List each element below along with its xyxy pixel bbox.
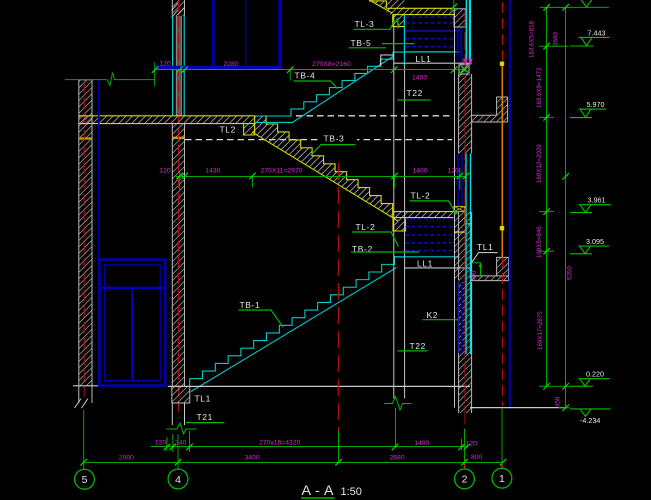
svg-text:169X12=2029: 169X12=2029 (536, 144, 543, 183)
svg-text:5350: 5350 (567, 266, 574, 280)
svg-text:270x16=4320: 270x16=4320 (259, 440, 301, 447)
svg-text:1: 1 (499, 473, 505, 485)
svg-text:LL1: LL1 (417, 259, 433, 269)
svg-text:TL-2: TL-2 (411, 190, 431, 200)
svg-text:400: 400 (471, 270, 478, 281)
svg-text:LL1: LL1 (416, 54, 432, 64)
svg-text:3.961: 3.961 (588, 196, 606, 205)
svg-text:120: 120 (466, 441, 478, 448)
svg-text:120: 120 (160, 61, 172, 68)
svg-text:169X17=2875: 169X17=2875 (537, 311, 544, 350)
svg-text:TB-3: TB-3 (324, 134, 345, 144)
svg-text:TB-5: TB-5 (351, 38, 372, 48)
svg-text:1400: 1400 (414, 440, 429, 447)
svg-text:1400: 1400 (413, 167, 428, 174)
svg-text:A - A: A - A (302, 483, 335, 499)
svg-text:3400: 3400 (245, 454, 260, 461)
svg-text:1400: 1400 (412, 75, 427, 82)
svg-text:5: 5 (82, 474, 88, 486)
svg-text:800: 800 (471, 454, 483, 461)
svg-text:169X5=846: 169X5=846 (536, 226, 543, 258)
svg-text:340: 340 (175, 440, 187, 447)
svg-text:TL1: TL1 (477, 242, 493, 252)
svg-text:163.6X5=818: 163.6X5=818 (529, 20, 536, 58)
svg-text:TL1: TL1 (195, 394, 211, 404)
svg-text:3.095: 3.095 (586, 237, 604, 246)
svg-text:TL2: TL2 (220, 125, 236, 135)
svg-text:1:50: 1:50 (341, 486, 362, 498)
svg-text:120: 120 (448, 167, 460, 174)
svg-text:5.970: 5.970 (587, 100, 605, 109)
svg-text:TL-3: TL-3 (355, 19, 375, 29)
svg-text:TB-2: TB-2 (352, 244, 373, 254)
svg-text:0.220: 0.220 (586, 370, 604, 379)
svg-text:TB-4: TB-4 (295, 70, 316, 80)
svg-text:7.443: 7.443 (588, 28, 606, 37)
svg-text:2: 2 (462, 474, 468, 486)
svg-text:T21: T21 (197, 412, 213, 422)
svg-text:270X11=2970: 270X11=2970 (261, 167, 303, 174)
svg-text:K2: K2 (427, 310, 439, 320)
svg-text:3600: 3600 (553, 32, 560, 46)
svg-text:163.6X9=1473: 163.6X9=1473 (536, 67, 543, 108)
svg-text:4: 4 (175, 474, 181, 486)
svg-text:2000: 2000 (119, 454, 134, 461)
svg-text:120: 120 (155, 440, 167, 447)
svg-text:T22: T22 (410, 341, 426, 351)
svg-text:270X8=2160: 270X8=2160 (312, 61, 351, 68)
svg-text:-4.234: -4.234 (580, 416, 600, 425)
svg-text:1430: 1430 (205, 167, 220, 174)
svg-text:TB-1: TB-1 (240, 300, 261, 310)
svg-text:T22: T22 (407, 88, 423, 98)
svg-text:450: 450 (555, 396, 562, 407)
svg-text:TL-2: TL-2 (356, 222, 376, 232)
svg-text:2280: 2280 (224, 61, 239, 68)
svg-text:120: 120 (159, 167, 171, 174)
svg-text:2680: 2680 (390, 454, 405, 461)
